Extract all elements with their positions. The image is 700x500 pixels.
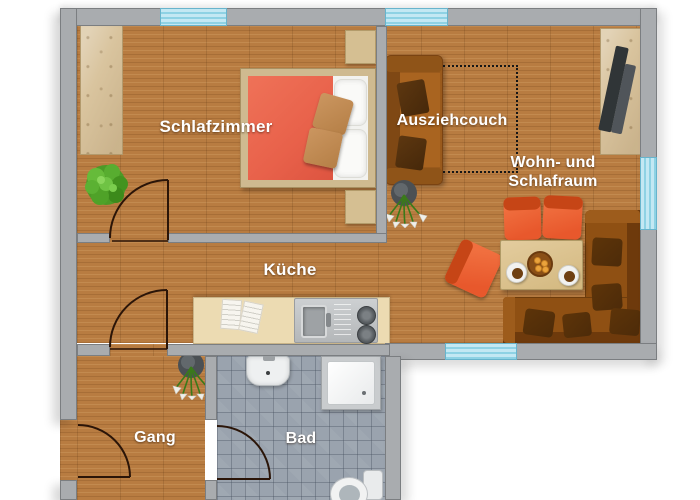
kitchen-door-threshold xyxy=(110,344,167,356)
stove-burner-icon xyxy=(357,325,376,344)
wall-bedroom-bottom xyxy=(168,233,387,243)
bench-cushion xyxy=(591,283,623,311)
coffee xyxy=(512,268,523,279)
exterior-wall-left xyxy=(60,8,77,420)
cookie xyxy=(542,266,549,273)
wall-bedroom-living xyxy=(376,26,387,243)
wall-bedroom-bottom xyxy=(77,233,110,243)
wall-hallway-bathroom xyxy=(205,356,217,420)
chair-backrest xyxy=(543,195,583,210)
room-label-bedroom: Schlafzimmer xyxy=(141,117,291,136)
book-page xyxy=(238,301,264,335)
toilet-bowl xyxy=(339,485,360,500)
bench-armrest xyxy=(585,210,640,223)
exterior-wall-bottom xyxy=(385,343,657,360)
chair-icon xyxy=(542,195,583,240)
chair-backrest xyxy=(503,196,540,210)
wall-bathroom-right xyxy=(385,356,401,500)
nightstand-icon xyxy=(345,30,376,64)
plate-of-cookies-icon xyxy=(527,251,553,277)
wardrobe-icon xyxy=(80,25,123,155)
room-label-living-line2: Schlafraum xyxy=(493,172,613,191)
coffee xyxy=(564,271,575,282)
window-icon xyxy=(640,157,657,230)
wall-hallway-top xyxy=(77,344,110,356)
nightstand-icon xyxy=(345,190,376,224)
exterior-wall-top xyxy=(60,8,657,26)
bench-armrest xyxy=(503,297,515,343)
window-icon xyxy=(445,343,517,360)
bench-cushion xyxy=(609,308,641,337)
drainer-icon xyxy=(334,304,351,339)
plant-bush-icon xyxy=(82,160,132,210)
chair-icon xyxy=(503,196,541,240)
room-label-kitchen: Küche xyxy=(254,260,326,279)
room-label-living: Wohn- und Schlafraum xyxy=(493,153,613,191)
sofa-armrest xyxy=(386,56,442,72)
window-icon xyxy=(385,8,448,26)
wall-hallway-bathroom-lower xyxy=(205,480,217,500)
shower-icon xyxy=(321,356,381,410)
bathroom-sink-icon xyxy=(246,356,290,386)
room-label-hallway: Gang xyxy=(119,428,191,447)
window-icon xyxy=(160,8,227,26)
coffee-cup-icon xyxy=(506,262,527,283)
cookie xyxy=(535,265,542,272)
flower-vase-icon xyxy=(385,180,429,228)
sink-icon xyxy=(301,305,327,338)
wall-bathroom-top xyxy=(167,344,390,356)
kitchen-sink-stove-unit xyxy=(294,298,378,343)
entry-threshold xyxy=(60,420,77,480)
bench-cushion xyxy=(591,237,622,267)
sofa-cushion xyxy=(395,135,427,171)
stove-burner-icon xyxy=(357,306,376,325)
room-label-bathroom: Bad xyxy=(271,429,331,448)
drain-icon xyxy=(266,371,270,375)
shower-tray xyxy=(327,361,375,405)
bench-cushion xyxy=(522,308,555,338)
cookie xyxy=(534,257,541,264)
label-pullout-couch: Ausziehcouch xyxy=(392,111,512,130)
floor-plan: Schlafzimmer Ausziehcouch Wohn- und Schl… xyxy=(0,0,700,500)
coffee-cup-icon xyxy=(558,265,579,286)
bench-cushion xyxy=(562,312,592,339)
drain-icon xyxy=(362,391,366,395)
faucet-icon xyxy=(326,313,331,327)
exterior-wall-left-lower xyxy=(60,480,77,500)
room-label-living-line1: Wohn- und xyxy=(493,153,613,172)
open-book-icon xyxy=(219,298,265,334)
